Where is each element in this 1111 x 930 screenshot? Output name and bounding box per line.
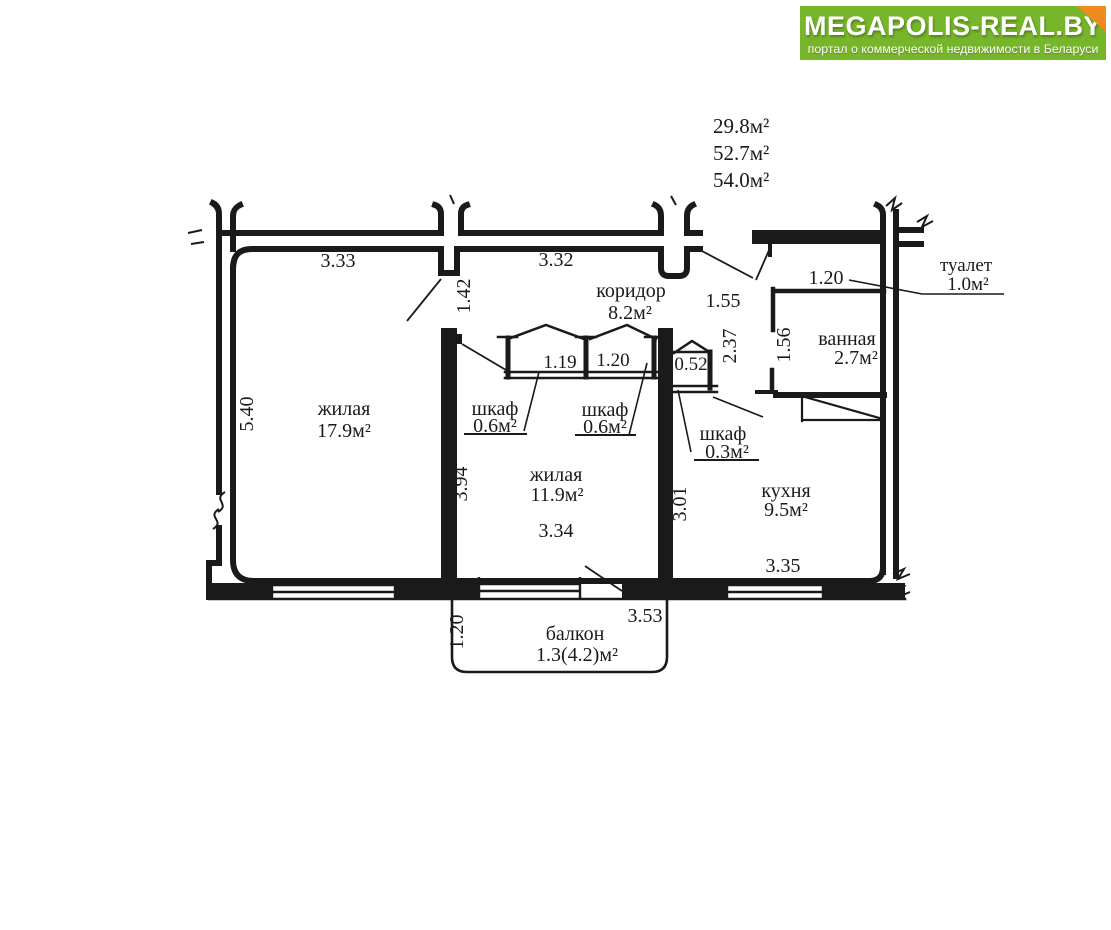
dim-toilet-width: 1.20	[809, 267, 844, 289]
dim-entry-width: 1.55	[706, 290, 741, 312]
bottom-wall-seg	[622, 583, 727, 599]
bottom-wall-seg	[395, 583, 479, 599]
room-label-toilet: туалет	[940, 255, 993, 276]
logo-subtitle: портал о коммерческой недвижимости в Бел…	[800, 42, 1106, 56]
logo-corner-fold-icon	[1077, 6, 1106, 32]
dim-living1-height: 5.40	[236, 397, 258, 432]
closet-left-area: 0.6м²	[473, 415, 517, 437]
room-area-living1: 17.9м²	[317, 420, 371, 442]
floor-plan-drawing: 29.8м² 52.7м² 54.0м² 3.33 3.32 1.55 1.20…	[0, 0, 1111, 925]
closet-door-swing	[462, 344, 506, 370]
room-label-living1: жилая	[317, 398, 371, 420]
logo-banner: MEGAPOLIS-REAL.BY портал о коммерческой …	[800, 6, 1106, 60]
closet-mid-area: 0.6м²	[583, 416, 627, 438]
partition-wall-1	[441, 328, 457, 583]
total-area-3: 54.0м²	[713, 168, 769, 192]
room-label-living2: жилая	[529, 464, 583, 486]
dim-bathroom-depth: 1.56	[773, 328, 795, 363]
room-area-living2: 11.9м²	[531, 484, 584, 506]
bottom-wall-seg	[823, 583, 905, 599]
entry-wall	[752, 230, 884, 244]
dim-kitchen-width: 3.35	[766, 555, 801, 577]
dim-living2-width: 3.34	[539, 520, 574, 542]
toilet-door-swing	[756, 248, 770, 280]
room-area-bathroom: 2.7м²	[834, 347, 878, 369]
total-area-1: 29.8м²	[713, 114, 769, 138]
room-area-corridor: 8.2м²	[608, 302, 652, 324]
bottom-wall-seg	[209, 583, 272, 599]
closet-small-area: 0.3м²	[705, 441, 749, 463]
living1-door-swing	[407, 279, 441, 321]
dim-living1-door: 1.42	[453, 279, 475, 314]
dim-balcony-depth: 1.20	[446, 615, 468, 650]
room-area-toilet: 1.0м²	[947, 274, 989, 295]
dim-closet-mid: 1.20	[596, 350, 629, 371]
room-area-balcony: 1.3(4.2)м²	[536, 644, 618, 666]
kitchen-door	[802, 395, 883, 421]
entry-door-swing	[700, 250, 753, 278]
dim-closet-left: 1.19	[543, 352, 576, 373]
wall-fills	[209, 230, 905, 599]
dim-closet-small: 0.52	[674, 354, 707, 375]
partition-wall-2	[658, 328, 673, 583]
room-area-kitchen: 9.5м²	[764, 499, 808, 521]
dim-living2-height: 3.94	[450, 467, 472, 502]
dim-balcony-width: 3.53	[628, 605, 663, 627]
dim-kitchen-height: 3.01	[669, 487, 691, 522]
dim-corridor-width: 3.32	[539, 249, 574, 271]
room-label-balcony: балкон	[546, 623, 605, 645]
logo-title: MEGAPOLIS-REAL.BY	[800, 13, 1106, 40]
partition-cap	[452, 334, 462, 344]
dim-hall-depth: 2.37	[719, 329, 741, 364]
room-label-corridor: коридор	[596, 280, 666, 302]
floor-plan-page: 29.8м² 52.7м² 54.0м² 3.33 3.32 1.55 1.20…	[0, 0, 1111, 925]
dim-living1-width: 3.33	[321, 250, 356, 272]
total-area-2: 52.7м²	[713, 141, 769, 165]
